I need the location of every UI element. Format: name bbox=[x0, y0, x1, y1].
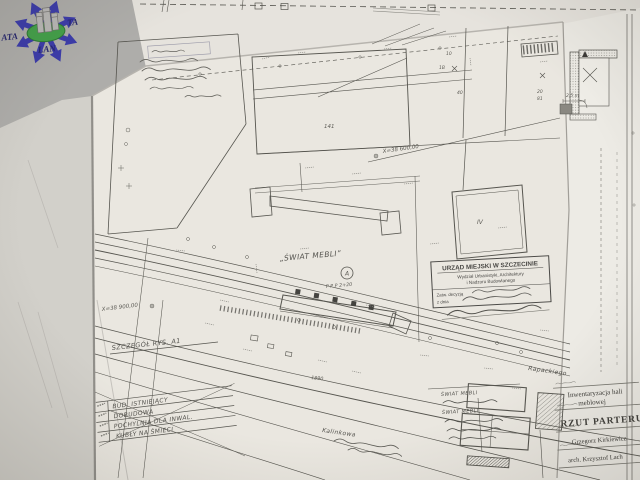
site-plan-canvas: 2,5 m Inwentaryzacja hali meblowej RZUT … bbox=[0, 0, 640, 480]
photo-vignette bbox=[0, 0, 640, 480]
site-plan-photo: 2,5 m Inwentaryzacja hali meblowej RZUT … bbox=[0, 0, 640, 480]
